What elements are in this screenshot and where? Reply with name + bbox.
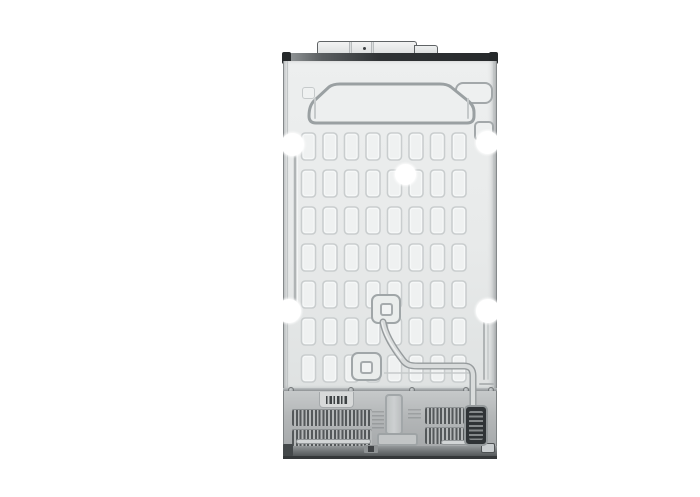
compressor-grille-dark: [464, 405, 488, 446]
compressor-grille-slats: [469, 411, 483, 440]
product-photo-fridge-rear: [40, 16, 700, 481]
coolant-tube: [283, 41, 497, 456]
fridge-body: [283, 41, 497, 456]
